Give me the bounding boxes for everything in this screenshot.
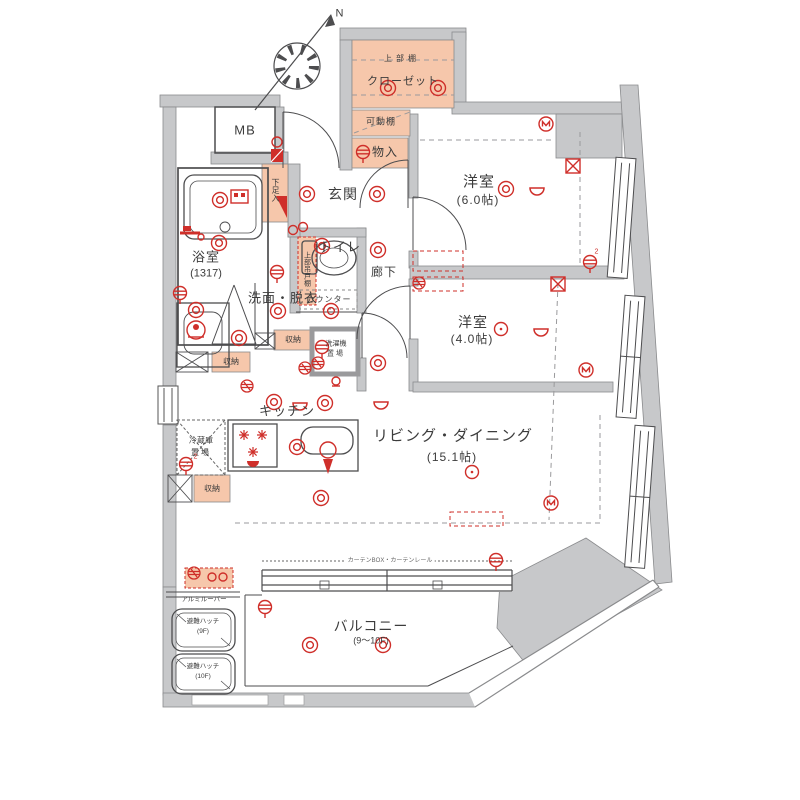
label-living-name: リビング・ダイニング [373, 429, 533, 444]
label-fridge-1: 冷蔵庫 [189, 437, 213, 445]
label-washer-2: 置場 [327, 351, 345, 358]
label-living-size: (15.1帖) [427, 451, 477, 463]
downlight-icon [212, 236, 227, 251]
outlet-icon [180, 458, 193, 476]
label-storage-c: 収納 [204, 485, 220, 493]
label-balcony-size: (9〜10F) [353, 637, 389, 646]
multimedia-socket-icon [539, 117, 553, 131]
downlight-icon [371, 356, 386, 371]
outlet-icon [490, 554, 503, 572]
floorplan-drawing [0, 0, 800, 800]
label-hatch9-2: (9F) [197, 629, 209, 636]
label-circuit-a: 2 [595, 249, 600, 256]
downlight-icon [499, 182, 514, 197]
downlight-icon [303, 638, 318, 653]
entry-door [283, 112, 339, 168]
stove-burner-icon [239, 430, 249, 440]
balcony-window [262, 569, 512, 592]
downlight-icon [300, 187, 315, 202]
vent-icon [566, 159, 580, 173]
label-meter-box: MB [234, 124, 256, 137]
label-louver: アルミルーバー [181, 597, 226, 604]
compass [255, 14, 335, 110]
wall-light-icon [534, 329, 548, 336]
label-room4-size: (4.0帖) [451, 333, 494, 345]
ceiling-light-icon [495, 323, 508, 336]
label-north: N [336, 9, 345, 20]
downlight-icon [370, 187, 385, 202]
label-movable-shelf: 可動棚 [366, 118, 396, 127]
label-washer-1: 洗濯機 [326, 341, 347, 348]
stove-burner-icon [248, 447, 258, 457]
outlet-icon [271, 266, 284, 284]
label-hatch10-2: (10F) [195, 674, 211, 681]
downlight-icon [324, 304, 339, 319]
label-closet: クローゼット [367, 77, 439, 88]
side-window [158, 386, 178, 424]
washer-faucet-icon [332, 377, 340, 386]
stove [233, 424, 277, 467]
label-kitchen: キッチン [259, 405, 315, 418]
downlight-icon [371, 243, 386, 258]
label-curtain-box: カーテンBOX・カーテンレール [346, 558, 435, 564]
pendant-light-icon [299, 362, 311, 374]
kitchen-sink [301, 427, 353, 454]
downlight-icon [318, 396, 333, 411]
label-storage-a: 収納 [285, 336, 301, 344]
hose-bib-icon [259, 601, 272, 619]
label-room6-size: (6.0帖) [457, 194, 500, 206]
downlight-icon [213, 193, 228, 208]
vanity-faucet-icon [187, 321, 205, 339]
wall-light-icon [374, 402, 388, 409]
stove-burner-icon [257, 430, 267, 440]
label-toilet-upper-cabinet: 上部吊戸棚 [304, 252, 311, 287]
stove-switch-icon [247, 461, 259, 467]
label-circuit-b: 2 [194, 454, 199, 461]
label-shoe-box: 下足入 [271, 178, 279, 202]
downlight-icon [232, 331, 247, 346]
downlight-icon [189, 303, 204, 318]
label-upper-shelf: 上部棚 [384, 55, 420, 63]
multimedia-socket-icon [579, 363, 593, 377]
label-bath-size: (1317) [190, 269, 222, 280]
washroom-door [362, 313, 407, 358]
label-bath-name: 浴室 [192, 251, 220, 264]
wall-light-icon [530, 188, 544, 195]
label-hatch9-1: 避難ハッチ [187, 619, 220, 626]
label-entrance: 玄関 [328, 187, 358, 201]
label-room4-name: 洋室 [458, 315, 488, 329]
label-toilet: トイレ [319, 241, 361, 254]
floor-plan-page: MB N 上部棚 クローゼット 可動棚 物入 玄関 下足入 洋室 (6.0帖) … [0, 0, 800, 800]
downlight-icon [271, 304, 286, 319]
pendant-light-icon [241, 380, 253, 392]
label-hatch10-1: 避難ハッチ [187, 664, 220, 671]
sink-faucet-icon [320, 442, 336, 474]
label-storage-b: 収納 [223, 358, 239, 366]
ceiling-light-icon [466, 466, 479, 479]
label-corridor: 廊下 [371, 266, 397, 278]
label-balcony-name: バルコニー [334, 619, 409, 633]
downlight-icon [314, 491, 329, 506]
bath-controller-icon [231, 190, 248, 203]
label-room6-name: 洋室 [463, 175, 495, 190]
multimedia-socket-icon [544, 496, 558, 510]
label-washroom: 洗面・脱衣 [248, 292, 318, 305]
label-storage-in: 物入 [372, 146, 398, 158]
